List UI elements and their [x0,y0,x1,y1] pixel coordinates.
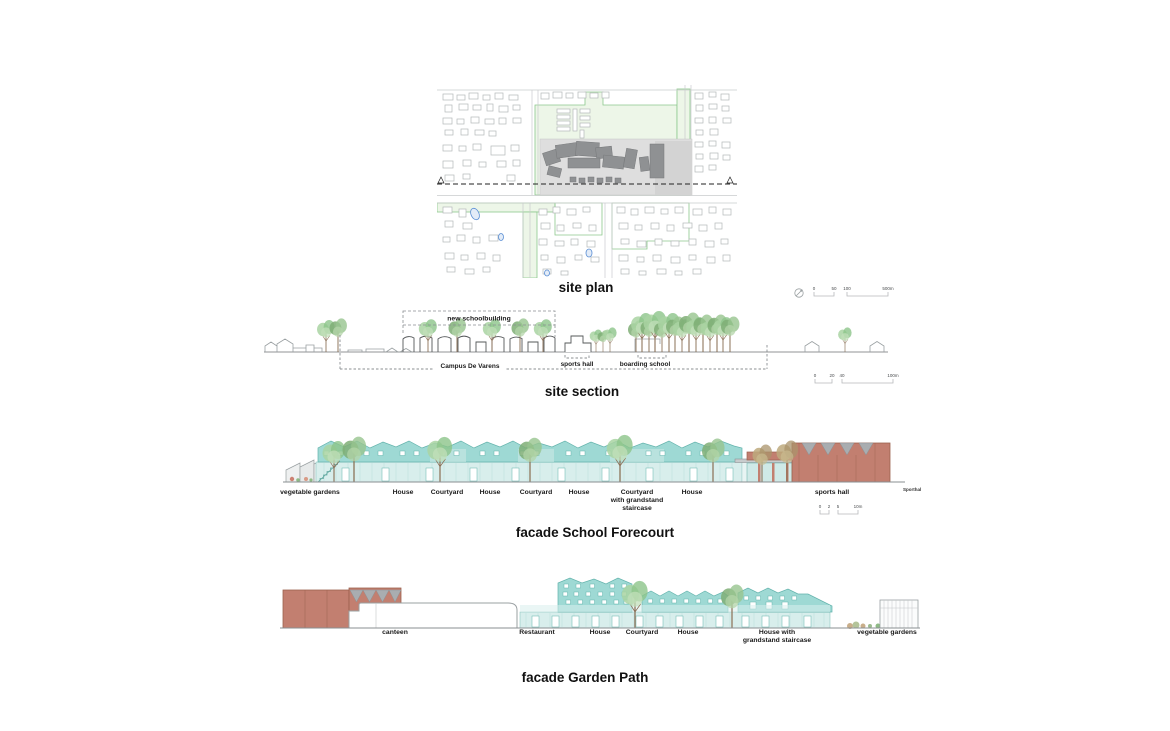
facade-label: Restaurant [519,629,555,637]
scalebar-tick: 0 [814,373,817,378]
glass-corridor-band [520,605,830,612]
facade-label: sports hall [815,489,849,497]
facade-label: House [678,629,699,637]
trees [590,327,617,352]
scalebar-tick: 2 [828,504,831,509]
school-site [540,139,692,195]
facade-label: vegetable gardens [857,629,917,637]
sports-hall-label: sports hall [561,361,594,368]
facade-label: House [393,489,414,497]
facade-label: House with grandstand staircase [743,629,811,645]
scalebar-tick: 0 [813,286,816,291]
facade-forecourt-title: facade School Forecourt [516,525,674,540]
north-arrow-icon [795,289,803,297]
facade-label: House [480,489,501,497]
sports-hall-bracket: sports hall [561,355,594,368]
section-marker-icon [438,177,444,183]
trees [317,318,347,352]
section-marker-icon [727,177,733,183]
facade-label: House [682,489,703,497]
facade-gardenpath-drawing [280,575,928,630]
scalebar-tick: 5 [837,504,840,509]
scalebar-brackets [814,292,888,296]
site-section-title: site section [545,384,619,399]
facade-gardenpath-title: facade Garden Path [522,670,649,685]
sporthal-note: Sporthal [903,487,921,492]
scalebar-tick: 50 [831,286,837,291]
site-section-drawing: new schoolbuilding Campus De Varens spor… [262,306,894,378]
scalebar-tick: 0 [819,504,822,509]
boarding-school-bracket: boarding school [620,355,671,368]
new-school-outline [403,336,555,352]
facade-forecourt-scalebar: 0 2 5 10m [816,502,871,518]
scalebar-tick: 10m [854,504,863,509]
facade-label: canteen [382,629,408,637]
scalebar-tick: 40 [839,373,845,378]
facade-label: Courtyard with grandstand staircase [611,489,664,513]
sports-hall-outline [565,336,591,352]
facade-forecourt-drawing [280,430,928,486]
facade-label: House [590,629,611,637]
site-plan-title: site plan [559,280,614,295]
scalebar-tick: 100 [843,286,851,291]
scalebar-tick: 20 [829,373,835,378]
canteen-building [349,603,517,628]
site-section-scalebar: 0 20 40 100m [809,371,904,387]
trees [419,318,552,352]
scalebar-brackets [820,510,858,514]
presentation-sheet: site plan 0 50 100 500m [0,0,1170,731]
school-facade-gardenpath [520,578,832,628]
site-plan-drawing [437,85,737,278]
boarding-school-outline [635,339,660,352]
scalebar-tick: 100m [887,373,899,378]
campus-label: Campus De Varens [441,363,500,370]
boarding-school-trees [628,311,739,352]
facade-label: vegetable gardens [280,489,340,497]
facade-label: Courtyard [520,489,552,497]
existing-buildings-left [265,339,412,352]
scalebar-tick: 500m [882,286,894,291]
facade-label: Courtyard [626,629,658,637]
scalebar-brackets [815,379,893,383]
vegetable-gardens-greenhouse [880,600,918,628]
site-plan-scalebar: 0 50 100 500m [791,284,906,302]
facade-label: House [569,489,590,497]
facade-label: Courtyard [431,489,463,497]
boarding-school-label: boarding school [620,361,671,368]
callout-label: new schoolbuilding [447,316,510,323]
tree [838,327,852,352]
